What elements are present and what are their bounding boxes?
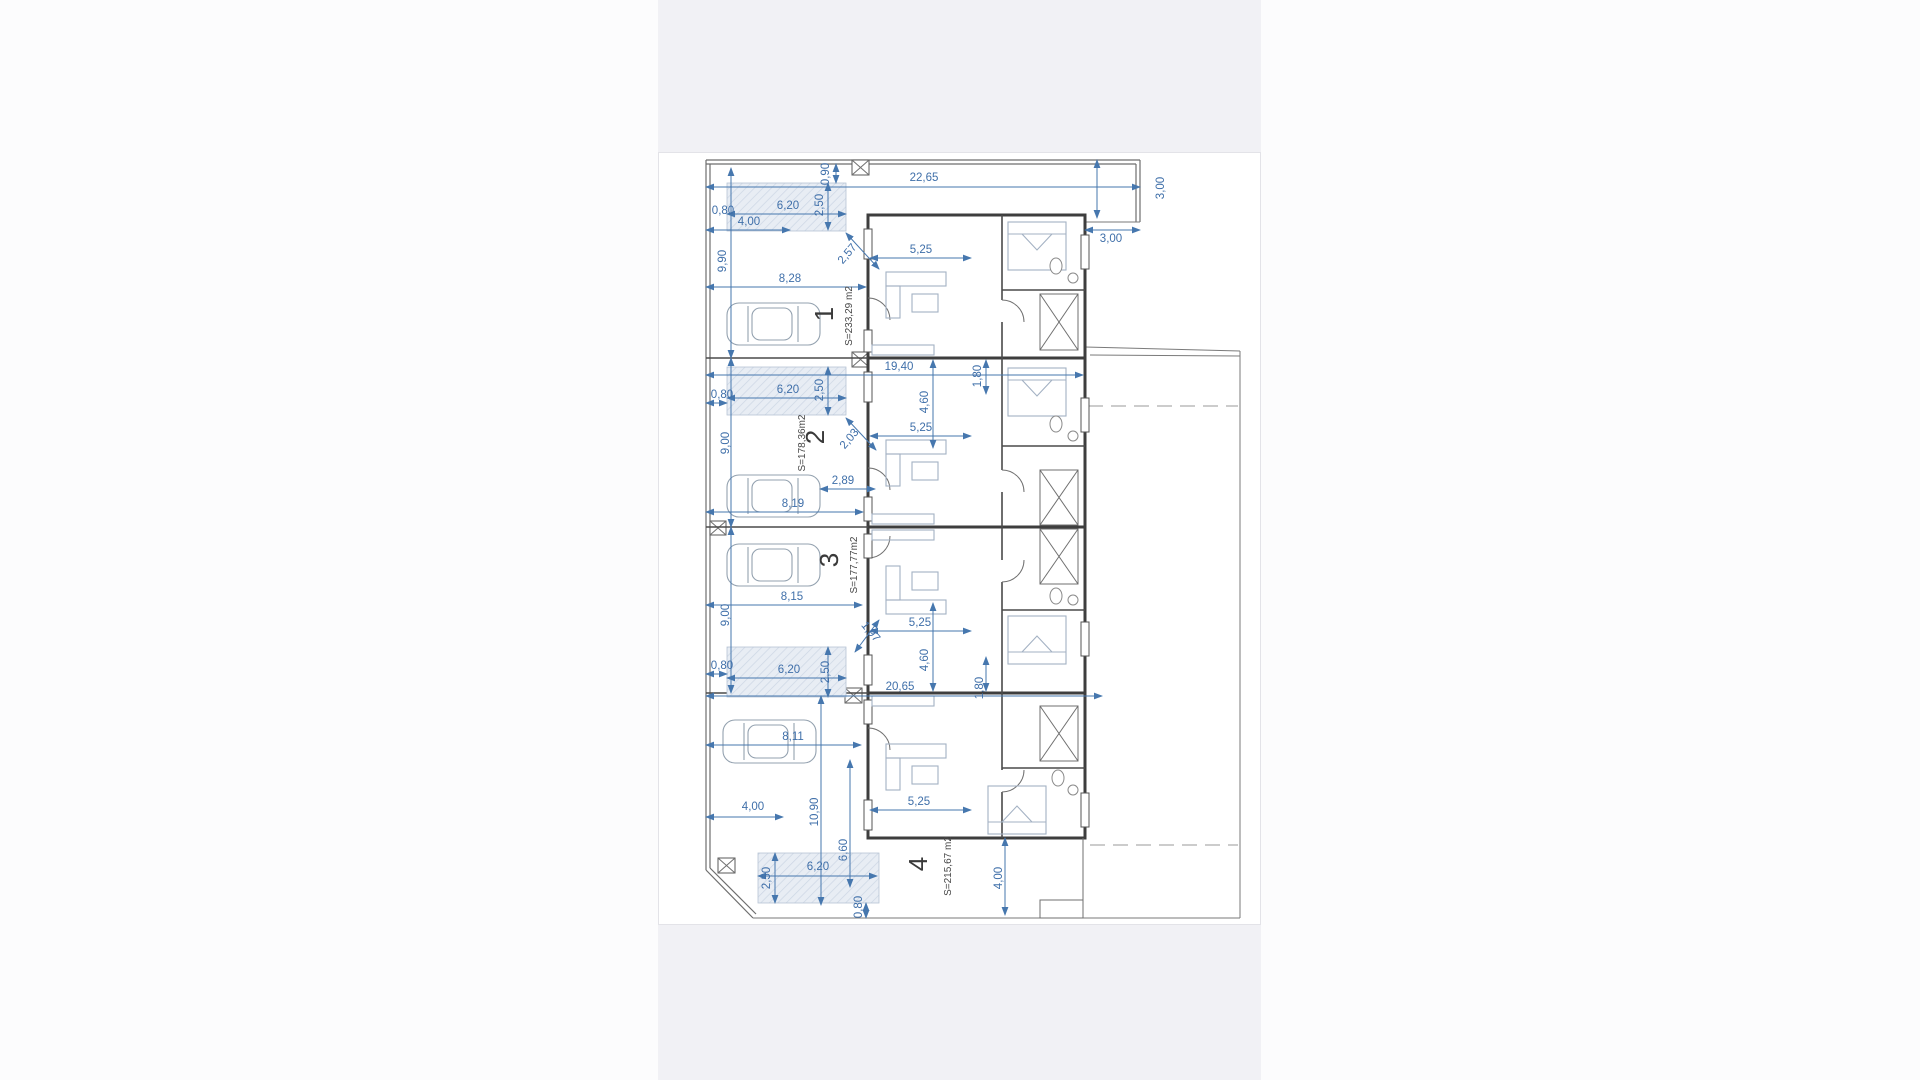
dim-label: 1,80 — [974, 677, 986, 699]
unit-label: 4 — [903, 857, 933, 871]
page: 0,9022,653,003,006,202,500,804,002,575,2… — [0, 0, 1920, 1080]
dim-label: 1,80 — [972, 365, 984, 387]
dashed-property-lines — [1088, 406, 1238, 845]
dim-label: 4,00 — [993, 867, 1005, 889]
dim-label: 6,20 — [778, 664, 800, 676]
dim-label: 8,11 — [782, 731, 804, 743]
dim-label: 4,60 — [919, 649, 931, 671]
dim-label: 2,50 — [814, 379, 826, 401]
living-furniture — [872, 272, 946, 790]
dim-label: 6,60 — [838, 839, 850, 861]
dim-label: 6,20 — [777, 200, 799, 212]
dim-label: 5,25 — [908, 796, 930, 808]
dim-label: 20,65 — [886, 681, 915, 693]
dim-label: 2,50 — [814, 194, 826, 216]
dim-label: 9,90 — [717, 250, 729, 272]
dim-label: 4,00 — [742, 801, 764, 813]
dim-label: 6,20 — [777, 384, 799, 396]
dim-label: 2,50 — [761, 867, 773, 889]
dim-label: 8,19 — [782, 498, 804, 510]
plan-labels: 0,9022,653,003,006,202,500,804,002,575,2… — [711, 163, 1167, 918]
dim-label: 8,28 — [779, 273, 801, 285]
dim-label: 22,65 — [910, 172, 939, 184]
area-label: S=177,77m2 — [849, 536, 860, 593]
dim-label: 19,40 — [885, 361, 914, 373]
area-label: S=233,29 m2 — [844, 286, 855, 346]
car-symbol-1 — [727, 303, 820, 345]
dim-label: 0,80 — [711, 389, 733, 401]
dim-label: 6,20 — [807, 861, 829, 873]
dim-label: 9,00 — [720, 604, 732, 626]
dim-label: 3,00 — [1155, 177, 1167, 199]
unit-label: 1 — [809, 307, 839, 321]
dim-label: 0,80 — [853, 896, 865, 918]
dim-label: 10,90 — [809, 798, 821, 827]
area-label: S=178,36m2 — [797, 414, 808, 471]
car-symbol-2 — [727, 475, 820, 517]
dim-label: 0,80 — [712, 205, 734, 217]
dim-label: 4,60 — [919, 391, 931, 413]
car-symbol-3 — [727, 544, 820, 586]
dim-label: 2,50 — [820, 661, 832, 683]
area-label: S=215,67 m2 — [943, 836, 954, 896]
dim-label: 5,25 — [910, 244, 932, 256]
dim-label: 3,00 — [1100, 233, 1122, 245]
dim-label: 4,00 — [738, 216, 760, 228]
dim-label: 9,00 — [720, 432, 732, 454]
dim-label: 2,57 — [836, 242, 860, 267]
floor-plan-drawing: 0,9022,653,003,006,202,500,804,002,575,2… — [0, 0, 1920, 1080]
dim-label: 5,25 — [910, 422, 932, 434]
unit-label: 3 — [814, 553, 844, 567]
dim-label: 2,89 — [832, 475, 854, 487]
dim-label: 8,15 — [781, 591, 803, 603]
dim-label: 0,90 — [820, 163, 832, 185]
dim-label: 0,80 — [711, 660, 733, 672]
dim-label: 1,97 — [859, 620, 883, 645]
dim-label: 5,25 — [909, 617, 931, 629]
